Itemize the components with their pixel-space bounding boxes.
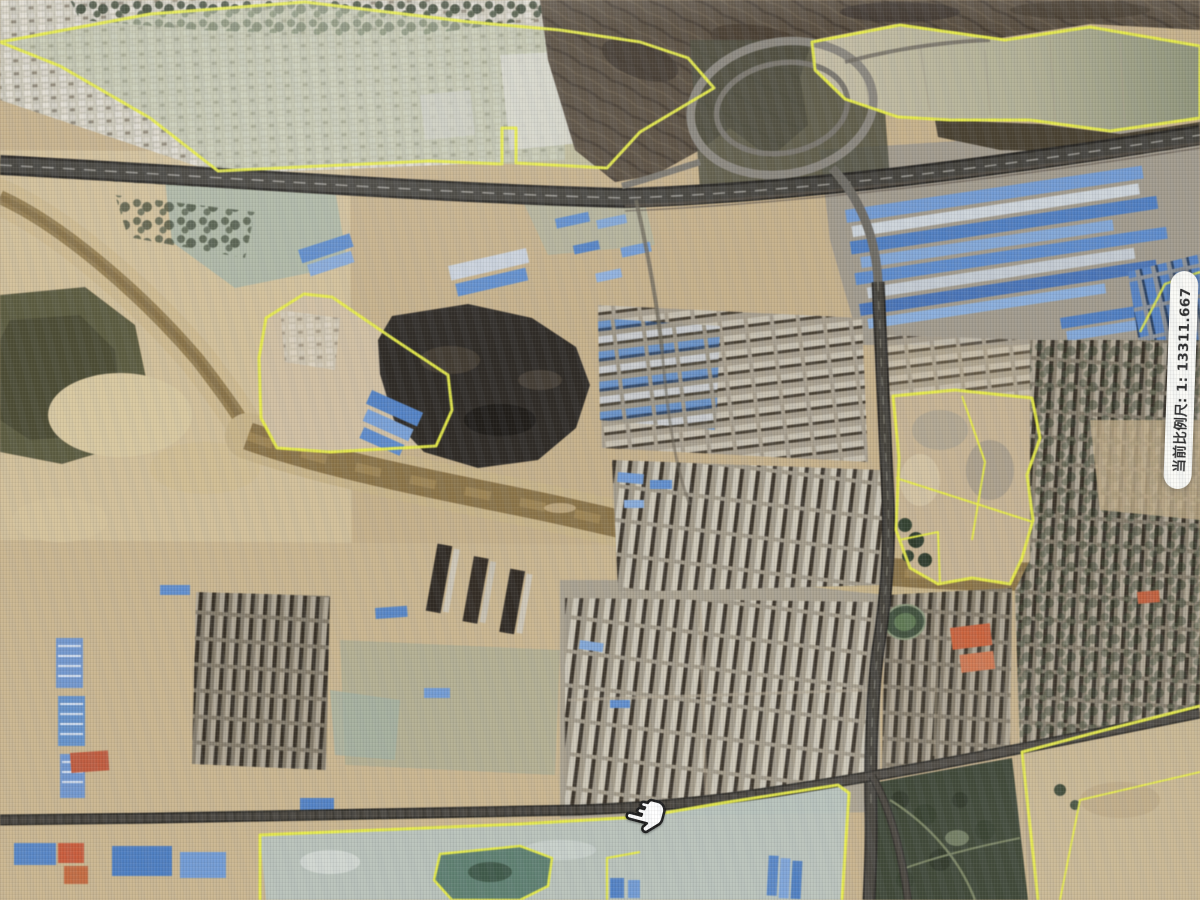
residential-rows-mid [598,305,886,592]
hand-grab-cursor-icon [622,794,666,838]
scale-indicator-label: 当前比例尺: 1: 13311.667 [1168,287,1194,473]
vacant-parcel-east [893,390,1040,584]
blue-towers-west [56,638,85,798]
screen-photo: 当前比例尺: 1: 13311.667 [0,0,1200,900]
satellite-map-canvas[interactable] [0,0,1200,900]
